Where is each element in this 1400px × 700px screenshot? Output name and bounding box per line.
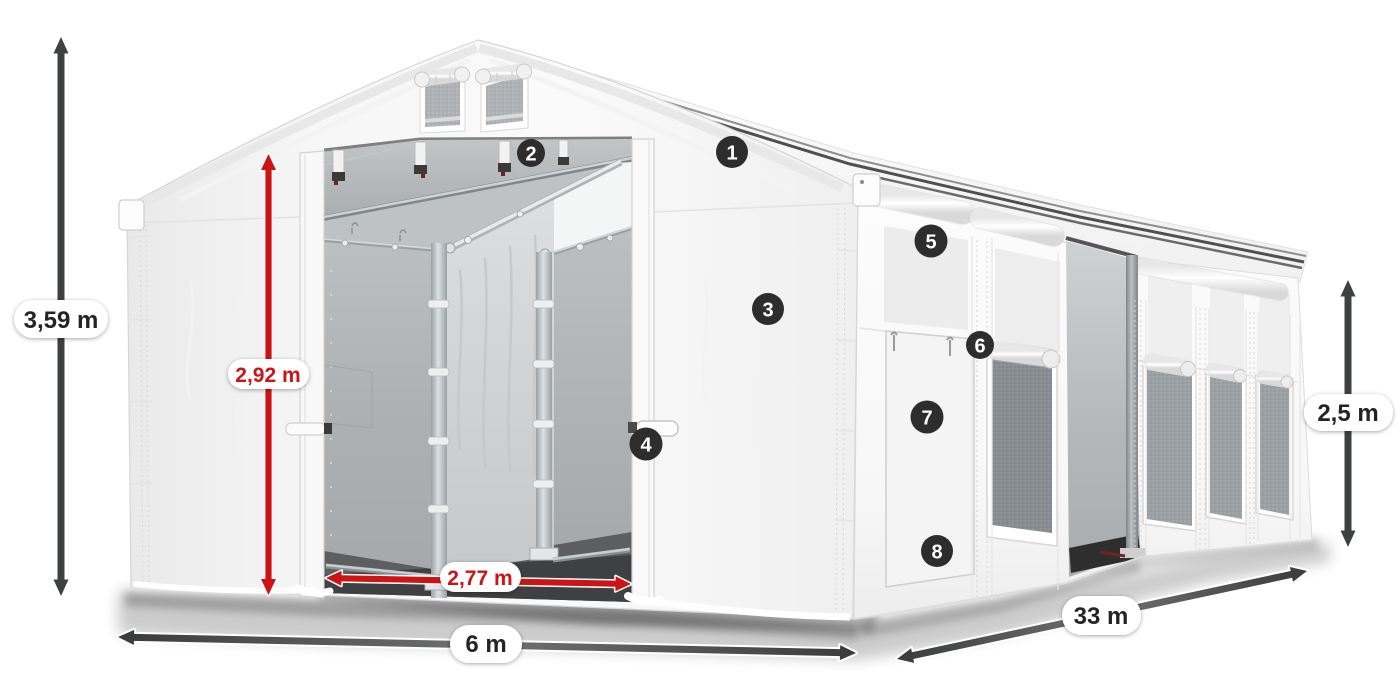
svg-text:8: 8 — [931, 542, 942, 564]
svg-text:4: 4 — [640, 435, 652, 457]
svg-text:2,5 m: 2,5 m — [1317, 400, 1378, 427]
svg-text:7: 7 — [921, 408, 932, 430]
svg-text:1: 1 — [726, 143, 737, 165]
svg-text:33 m: 33 m — [1074, 603, 1129, 630]
svg-text:6 m: 6 m — [465, 631, 506, 658]
svg-text:5: 5 — [925, 232, 936, 254]
svg-text:3: 3 — [762, 300, 773, 322]
svg-text:2,92 m: 2,92 m — [235, 364, 300, 387]
svg-text:6: 6 — [974, 336, 985, 358]
svg-text:2: 2 — [525, 144, 536, 166]
svg-text:2,77 m: 2,77 m — [447, 567, 512, 590]
svg-text:3,59 m: 3,59 m — [24, 307, 99, 334]
